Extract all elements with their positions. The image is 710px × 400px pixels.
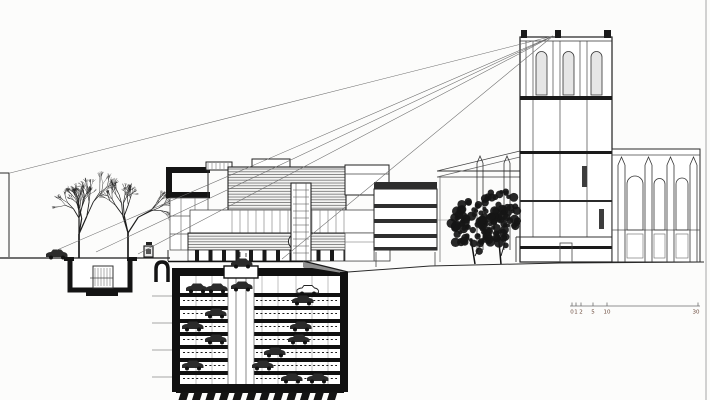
- scale-label-10: 10: [604, 310, 611, 316]
- church-tower: [516, 30, 616, 262]
- church-nave: [612, 149, 700, 262]
- section-drawing-canvas: 0 1 2 5 10 30: [0, 0, 710, 400]
- scale-label-30: 30: [693, 310, 700, 316]
- arched-tunnel: [156, 262, 168, 282]
- architectural-section-drawing: 0 1 2 5 10 30: [0, 0, 710, 400]
- underground-parking-garage: [152, 252, 348, 400]
- street-objects: [144, 242, 153, 257]
- scale-label-2: 2: [579, 310, 583, 316]
- underground-chamber: [64, 257, 137, 296]
- scale-label-5: 5: [591, 310, 595, 316]
- scale-bar: 0 1 2 5 10 30: [570, 303, 700, 316]
- scale-label-1: 1: [574, 310, 578, 316]
- main-building-section: [166, 159, 390, 262]
